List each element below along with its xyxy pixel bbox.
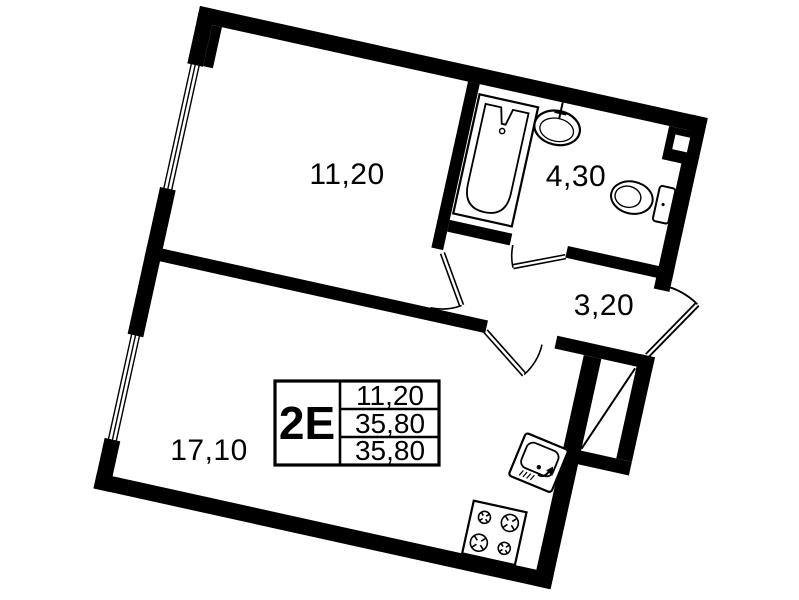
bathroom-door	[508, 243, 567, 279]
door-leaf	[645, 295, 699, 366]
unit-type-label: 2E	[279, 397, 335, 449]
info-room-area: 11,20	[356, 380, 424, 411]
bedroom-area-label: 11,20	[309, 158, 384, 191]
shaft-niche	[672, 135, 690, 153]
wall-bathroom-bottom-right	[565, 246, 674, 281]
living-area-label: 17,10	[170, 434, 248, 467]
bedroom-window-icon	[160, 63, 203, 191]
wall-top	[197, 6, 708, 134]
wall-room-divider	[144, 245, 488, 333]
floor-plan-page: 11,20 4,30 3,20 17,10 2E 11,20 35,80 35,…	[0, 0, 799, 600]
door-swing-arc	[524, 342, 542, 377]
apartment-outline	[93, 6, 738, 600]
unit-info-box: 2E 11,20 35,80 35,80	[275, 380, 439, 466]
toilet-icon	[607, 176, 675, 225]
hallway-area-label: 3,20	[574, 289, 634, 322]
door-leaf	[430, 252, 473, 307]
door-leaf	[512, 244, 567, 279]
wall-right-middle	[616, 354, 655, 462]
info-full-area: 35,80	[355, 435, 425, 466]
entrance-door	[645, 285, 701, 365]
stove-icon	[462, 501, 526, 565]
living-window-icon	[104, 333, 143, 442]
floor-plan-drawing: 11,20 4,30 3,20 17,10 2E 11,20 35,80 35,…	[0, 0, 799, 600]
door-leaf	[477, 329, 533, 376]
living-room-door	[477, 329, 543, 378]
bedroom-door	[429, 252, 474, 315]
bathroom-area-label: 4,30	[546, 160, 606, 193]
